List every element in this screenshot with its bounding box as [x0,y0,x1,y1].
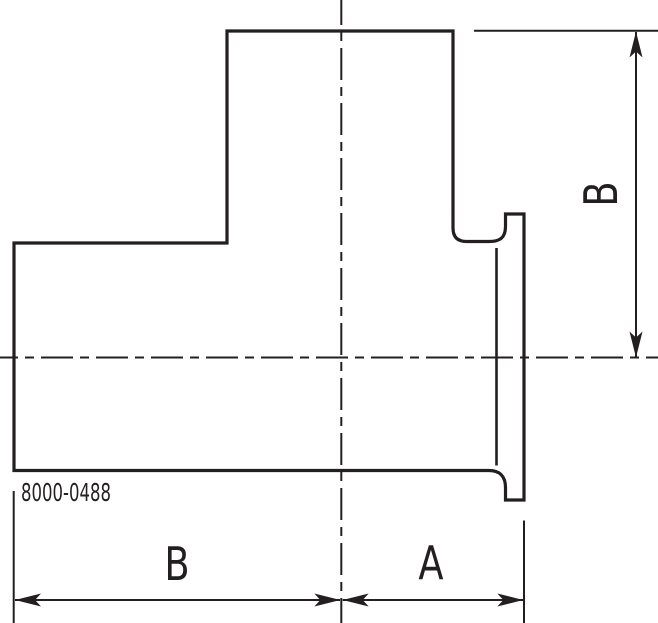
dimension-label-branch-height: B [578,181,624,206]
fitting-body-outline [14,31,524,500]
part-number-text: 8000-0488 [21,480,111,505]
dimension-label-run-length: B [164,541,189,587]
technical-drawing-canvas: B B A 8000-0488 [0,0,658,623]
dimension-label-ferrule-length: A [418,540,443,586]
tee-fitting-drawing [0,0,658,623]
